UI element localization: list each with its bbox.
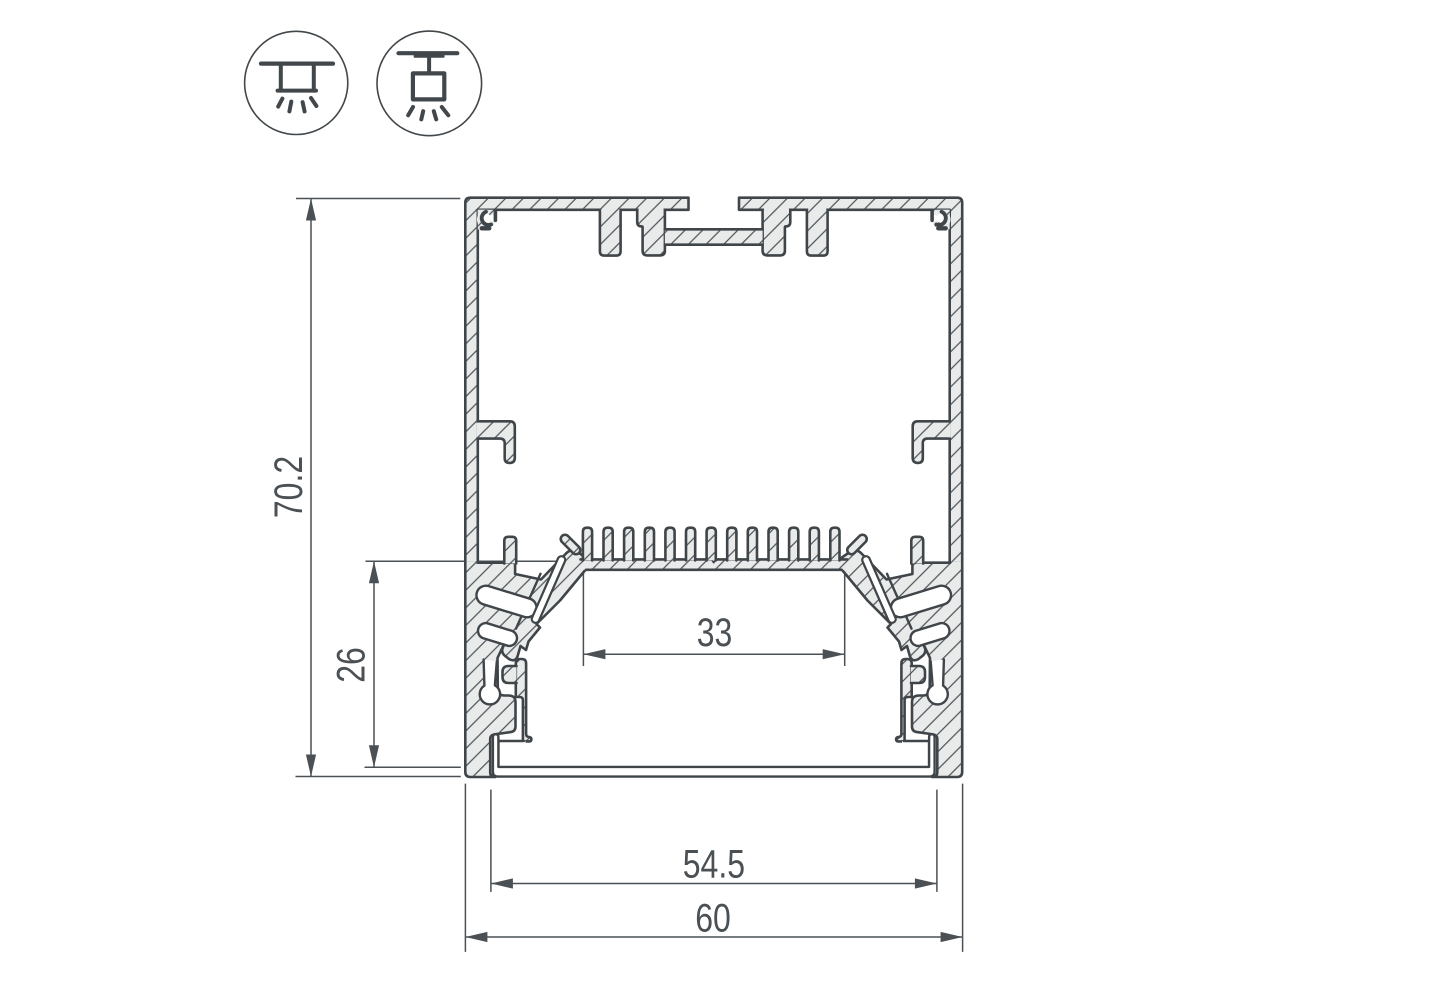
svg-text:54.5: 54.5 [683,841,745,886]
svg-text:70.2: 70.2 [266,456,311,518]
svg-text:33: 33 [697,610,733,655]
svg-text:26: 26 [328,647,373,683]
svg-text:60: 60 [695,895,731,940]
